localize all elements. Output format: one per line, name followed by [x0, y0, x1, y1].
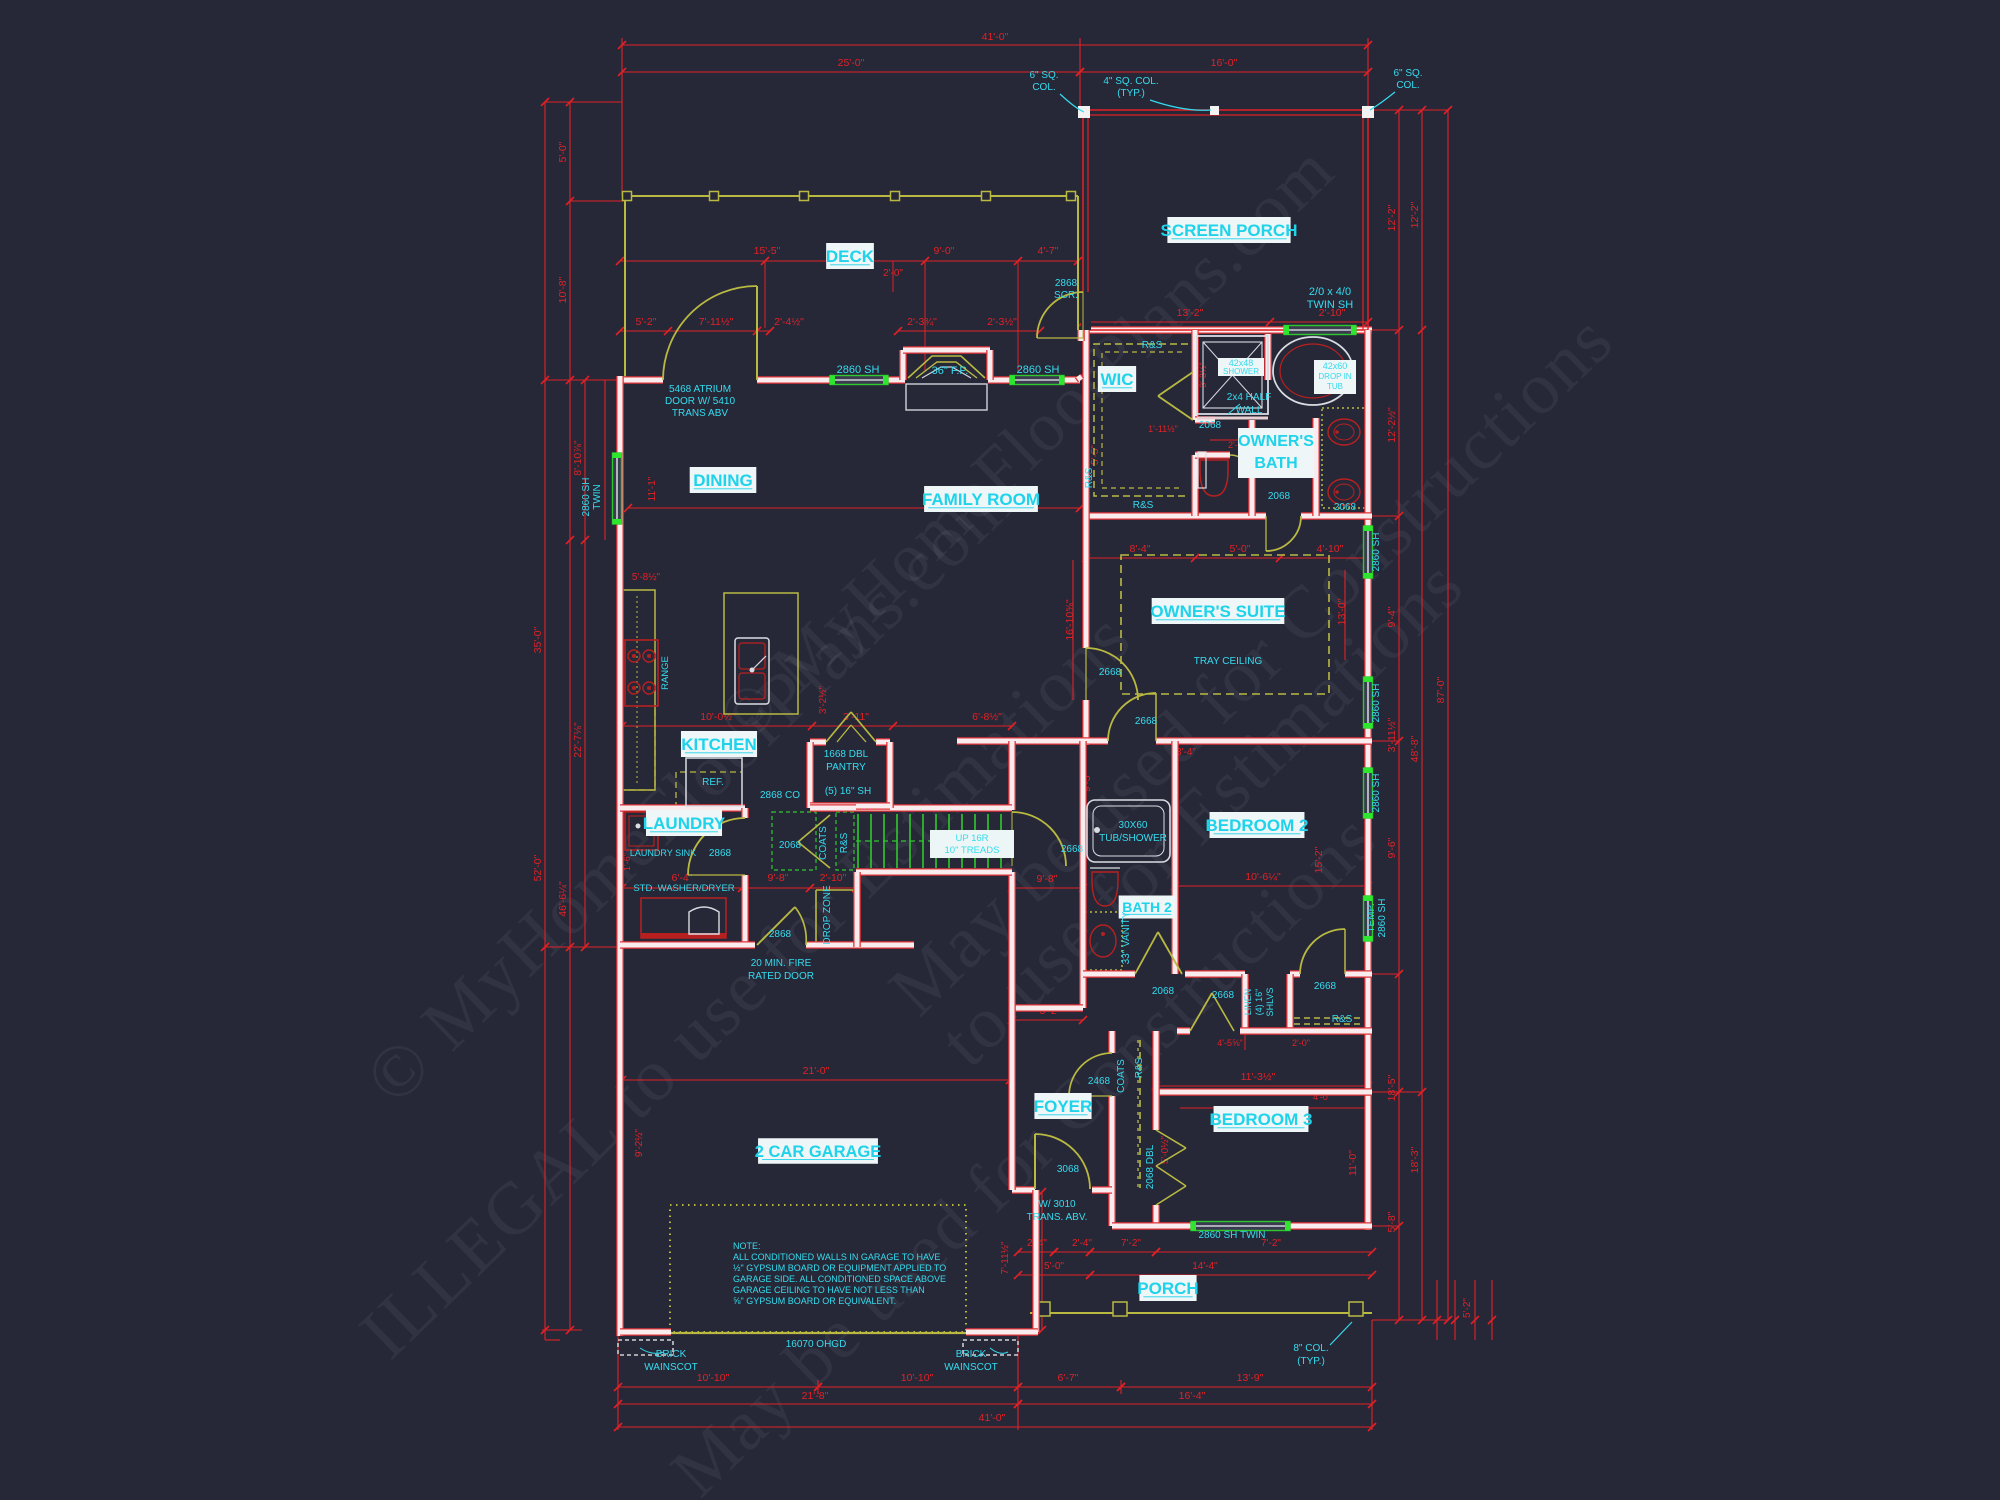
- svg-text:LINEN: LINEN: [1243, 989, 1253, 1016]
- svg-text:2068: 2068: [1334, 502, 1357, 513]
- svg-text:2860 SH: 2860 SH: [1371, 774, 1382, 813]
- svg-text:2860 SH: 2860 SH: [1371, 533, 1382, 572]
- svg-text:16070 OHGD: 16070 OHGD: [786, 1339, 847, 1350]
- svg-text:OWNER'S SUITE: OWNER'S SUITE: [1150, 602, 1285, 621]
- svg-text:R&S: R&S: [1332, 1014, 1353, 1025]
- svg-text:52'-0": 52'-0": [532, 854, 544, 881]
- svg-text:5'-2": 5'-2": [1462, 1298, 1473, 1318]
- svg-text:12'-2½": 12'-2½": [1386, 407, 1398, 443]
- svg-text:10'-0½": 10'-0½": [700, 711, 736, 723]
- svg-text:REF.: REF.: [702, 777, 724, 788]
- svg-text:9'-6": 9'-6": [1386, 837, 1398, 858]
- svg-text:WIC: WIC: [1100, 370, 1133, 389]
- svg-text:WAINSCOT: WAINSCOT: [644, 1362, 698, 1373]
- svg-text:TWIN: TWIN: [592, 484, 603, 510]
- svg-text:(4) 16": (4) 16": [1254, 989, 1264, 1016]
- svg-text:10'-8": 10'-8": [557, 276, 569, 303]
- svg-text:2868 CO: 2868 CO: [760, 790, 800, 801]
- svg-text:46'-6¼": 46'-6¼": [557, 881, 569, 917]
- svg-text:TWIN SH: TWIN SH: [1307, 299, 1353, 311]
- svg-text:PANTRY: PANTRY: [826, 762, 866, 773]
- svg-text:8'-4": 8'-4": [1130, 543, 1151, 555]
- svg-text:COATS: COATS: [818, 826, 829, 860]
- svg-text:COATS: COATS: [1116, 1059, 1127, 1093]
- svg-text:BEDROOM 2: BEDROOM 2: [1206, 816, 1309, 835]
- svg-text:LAUNDRY SINK: LAUNDRY SINK: [630, 848, 696, 858]
- svg-text:NOTE:: NOTE:: [733, 1241, 761, 1251]
- svg-text:36" F.P.: 36" F.P.: [932, 365, 969, 377]
- svg-text:DINING: DINING: [693, 471, 753, 490]
- svg-text:8'-10⅞": 8'-10⅞": [572, 440, 584, 476]
- svg-text:30X60: 30X60: [1119, 820, 1148, 831]
- svg-text:BEDROOM 3: BEDROOM 3: [1210, 1110, 1313, 1129]
- svg-text:8" COL.: 8" COL.: [1293, 1343, 1328, 1354]
- svg-text:9'-2½": 9'-2½": [634, 1128, 645, 1157]
- svg-text:41'-0": 41'-0": [979, 1412, 1006, 1424]
- svg-text:48'-8": 48'-8": [1409, 735, 1421, 762]
- svg-text:35'-0": 35'-0": [532, 626, 544, 653]
- svg-text:FAMILY ROOM: FAMILY ROOM: [922, 490, 1040, 509]
- svg-text:2068: 2068: [779, 840, 802, 851]
- svg-text:4'-7": 4'-7": [1038, 245, 1059, 257]
- svg-text:41'-0": 41'-0": [982, 31, 1009, 43]
- svg-text:7'-11½": 7'-11½": [1000, 1241, 1011, 1275]
- svg-text:3'-4": 3'-4": [1176, 747, 1196, 758]
- svg-text:11'-0": 11'-0": [1347, 1150, 1359, 1176]
- svg-text:COL.: COL.: [1032, 82, 1055, 93]
- svg-text:2860 SH: 2860 SH: [1371, 684, 1382, 723]
- svg-text:13'-0": 13'-0": [1336, 598, 1348, 625]
- svg-text:5'-2": 5'-2": [636, 316, 657, 328]
- svg-text:6'-7": 6'-7": [1058, 1372, 1079, 1384]
- svg-text:2860 SH: 2860 SH: [1377, 899, 1388, 938]
- svg-text:R&S: R&S: [1142, 340, 1163, 351]
- svg-text:2'-4½": 2'-4½": [774, 316, 804, 328]
- svg-text:9'-0": 9'-0": [934, 245, 955, 257]
- svg-text:2860 SH: 2860 SH: [837, 364, 880, 376]
- svg-text:3'-11½": 3'-11½": [1386, 717, 1398, 752]
- svg-text:TRANS. ABV.: TRANS. ABV.: [1027, 1212, 1088, 1223]
- svg-text:25'-0": 25'-0": [838, 57, 865, 69]
- svg-text:DROP IN: DROP IN: [1318, 372, 1351, 381]
- svg-text:13'-9": 13'-9": [1237, 1372, 1264, 1384]
- svg-text:12'-2": 12'-2": [1386, 204, 1398, 231]
- svg-text:TRAY CEILING: TRAY CEILING: [1194, 656, 1263, 667]
- svg-text:3068: 3068: [1057, 1164, 1080, 1175]
- svg-text:9'-8": 9'-8": [768, 872, 789, 884]
- svg-text:2868: 2868: [769, 929, 792, 940]
- svg-text:2'-0": 2'-0": [1292, 1038, 1310, 1048]
- svg-text:1'-11½": 1'-11½": [1148, 424, 1178, 434]
- svg-text:(5) 16" SH: (5) 16" SH: [825, 786, 871, 797]
- svg-text:2468: 2468: [1088, 1076, 1111, 1087]
- svg-text:5'-8": 5'-8": [1386, 1211, 1398, 1232]
- svg-text:4" SQ. COL.: 4" SQ. COL.: [1103, 76, 1158, 87]
- svg-text:⅝" GYPSUM BOARD OR EQUIVALENT.: ⅝" GYPSUM BOARD OR EQUIVALENT.: [733, 1296, 896, 1306]
- svg-text:5'-0": 5'-0": [1044, 1261, 1064, 1272]
- svg-text:2068 DBL: 2068 DBL: [1145, 1144, 1156, 1189]
- svg-text:3'-2½": 3'-2½": [818, 685, 829, 714]
- svg-text:2068: 2068: [1152, 986, 1175, 997]
- svg-text:6" SQ.: 6" SQ.: [1393, 68, 1422, 79]
- svg-text:33" VANITY: 33" VANITY: [1121, 911, 1132, 964]
- svg-text:GARAGE SIDE. ALL CONDITIONED S: GARAGE SIDE. ALL CONDITIONED SPACE ABOVE: [733, 1274, 946, 1284]
- svg-text:FOYER: FOYER: [1034, 1097, 1093, 1116]
- svg-text:RANGE: RANGE: [660, 656, 671, 690]
- svg-text:10" TREADS: 10" TREADS: [945, 845, 1000, 856]
- svg-text:(TYP.): (TYP.): [1297, 1356, 1325, 1367]
- svg-text:TUB/SHOWER: TUB/SHOWER: [1099, 833, 1167, 844]
- svg-text:2x4 HALF: 2x4 HALF: [1227, 392, 1271, 403]
- svg-text:10'-6¼": 10'-6¼": [1245, 871, 1281, 883]
- svg-text:5'-5": 5'-5": [1090, 445, 1101, 465]
- svg-text:R&S: R&S: [839, 832, 850, 853]
- svg-text:2 CAR GARAGE: 2 CAR GARAGE: [755, 1143, 882, 1161]
- svg-text:10'-10": 10'-10": [901, 1372, 934, 1384]
- svg-text:2668: 2668: [1135, 716, 1158, 727]
- svg-text:9'-4": 9'-4": [1386, 606, 1398, 627]
- svg-text:7'-2": 7'-2": [1121, 1238, 1141, 1249]
- svg-text:WALL: WALL: [1236, 405, 1263, 416]
- svg-text:15'-2": 15'-2": [1313, 846, 1325, 873]
- svg-text:5'-0": 5'-0": [557, 141, 569, 162]
- svg-text:20 MIN. FIRE: 20 MIN. FIRE: [751, 958, 812, 969]
- svg-text:9'-8": 9'-8": [1037, 873, 1058, 885]
- svg-text:18'-5": 18'-5": [1386, 1074, 1398, 1101]
- svg-text:SCR.: SCR.: [1054, 290, 1078, 301]
- svg-text:R&S: R&S: [1134, 1057, 1145, 1078]
- svg-text:2668: 2668: [1314, 981, 1337, 992]
- svg-text:2/0 x 4/0: 2/0 x 4/0: [1309, 286, 1351, 298]
- svg-text:2'-4": 2'-4": [1072, 1238, 1092, 1249]
- svg-text:W/ 3010: W/ 3010: [1038, 1199, 1076, 1210]
- svg-text:LAUNDRY: LAUNDRY: [643, 814, 726, 833]
- svg-text:12'-2": 12'-2": [1409, 201, 1421, 228]
- svg-text:DOOR W/ 5410: DOOR W/ 5410: [665, 396, 735, 407]
- svg-text:14'-4": 14'-4": [1192, 1261, 1218, 1272]
- svg-text:18'-3": 18'-3": [1409, 1146, 1421, 1173]
- svg-text:2668: 2668: [1099, 667, 1122, 678]
- svg-text:7'-11½": 7'-11½": [699, 316, 734, 328]
- svg-text:TEMP.: TEMP.: [1366, 903, 1377, 932]
- svg-text:BRICK: BRICK: [656, 1349, 687, 1360]
- svg-text:UP 16R: UP 16R: [955, 833, 988, 844]
- svg-text:RATED DOOR: RATED DOOR: [748, 971, 814, 982]
- svg-text:STD. WASHER/DRYER: STD. WASHER/DRYER: [633, 883, 734, 894]
- svg-text:16'-0": 16'-0": [1211, 57, 1238, 69]
- svg-text:2668: 2668: [1212, 990, 1235, 1001]
- svg-text:BATH: BATH: [1254, 455, 1297, 472]
- svg-text:2'-3¾": 2'-3¾": [907, 316, 937, 328]
- svg-text:4'-5⅝": 4'-5⅝": [1217, 1038, 1242, 1048]
- svg-text:6" SQ.: 6" SQ.: [1029, 70, 1058, 81]
- svg-text:11'-3½": 11'-3½": [1241, 1071, 1276, 1083]
- svg-text:BRICK: BRICK: [956, 1349, 987, 1360]
- svg-text:21'-8": 21'-8": [802, 1390, 829, 1402]
- svg-text:5'-0": 5'-0": [1230, 543, 1251, 555]
- svg-text:16'-4": 16'-4": [1179, 1390, 1206, 1402]
- svg-text:21'-0": 21'-0": [803, 1065, 830, 1077]
- svg-text:SHOWER: SHOWER: [1223, 367, 1259, 376]
- svg-text:2'-3½": 2'-3½": [987, 316, 1017, 328]
- svg-text:GARAGE CEILING TO HAVE NOT LES: GARAGE CEILING TO HAVE NOT LESS THAN: [733, 1285, 925, 1295]
- svg-text:2068: 2068: [1268, 491, 1291, 502]
- svg-text:4'-10": 4'-10": [1317, 543, 1344, 555]
- svg-text:SHLVS: SHLVS: [1265, 988, 1275, 1017]
- svg-text:R&S: R&S: [1084, 467, 1095, 488]
- svg-text:15'-5": 15'-5": [754, 245, 781, 257]
- svg-text:5'-8½": 5'-8½": [632, 572, 661, 583]
- svg-text:2860 SH TWIN: 2860 SH TWIN: [1198, 1230, 1265, 1241]
- svg-text:16'-10⅝": 16'-10⅝": [1064, 599, 1076, 641]
- svg-text:2860 SH: 2860 SH: [581, 478, 592, 517]
- svg-text:KITCHEN: KITCHEN: [681, 735, 757, 754]
- svg-text:OWNER'S: OWNER'S: [1238, 433, 1314, 450]
- svg-text:87'-0": 87'-0": [1435, 676, 1447, 703]
- svg-text:2868: 2868: [1055, 278, 1078, 289]
- svg-text:1668 DBL: 1668 DBL: [824, 749, 869, 760]
- svg-text:DROP ZONE: DROP ZONE: [822, 885, 833, 945]
- svg-text:COL.: COL.: [1396, 80, 1419, 91]
- svg-text:10'-10": 10'-10": [697, 1372, 730, 1384]
- svg-text:22'-7⅛": 22'-7⅛": [572, 722, 584, 758]
- svg-text:SCREEN PORCH: SCREEN PORCH: [1161, 221, 1298, 240]
- svg-text:11'-1": 11'-1": [647, 476, 658, 501]
- svg-text:42x60: 42x60: [1323, 361, 1348, 371]
- svg-text:5468 ATRIUM: 5468 ATRIUM: [669, 384, 731, 395]
- svg-text:13'-2": 13'-2": [1177, 307, 1204, 319]
- svg-text:WAINSCOT: WAINSCOT: [944, 1362, 998, 1373]
- svg-text:TUB: TUB: [1327, 382, 1343, 391]
- svg-text:2068: 2068: [1199, 420, 1222, 431]
- svg-text:2860 SH: 2860 SH: [1017, 364, 1060, 376]
- svg-text:(TYP.): (TYP.): [1117, 88, 1145, 99]
- svg-text:R&S: R&S: [1133, 500, 1154, 511]
- svg-text:ALL CONDITIONED WALLS IN GARAG: ALL CONDITIONED WALLS IN GARAGE TO HAVE: [733, 1252, 940, 1262]
- svg-text:6'-8½": 6'-8½": [972, 711, 1002, 723]
- svg-text:2'-10": 2'-10": [820, 872, 847, 884]
- svg-text:DECK: DECK: [826, 247, 875, 266]
- svg-text:2668: 2668: [1061, 844, 1084, 855]
- svg-text:½" GYPSUM BOARD OR EQUIPMENT A: ½" GYPSUM BOARD OR EQUIPMENT APPLIED TO: [733, 1263, 946, 1273]
- svg-text:2868: 2868: [709, 848, 732, 859]
- svg-text:PORCH: PORCH: [1137, 1279, 1198, 1298]
- svg-text:TRANS ABV: TRANS ABV: [672, 408, 728, 419]
